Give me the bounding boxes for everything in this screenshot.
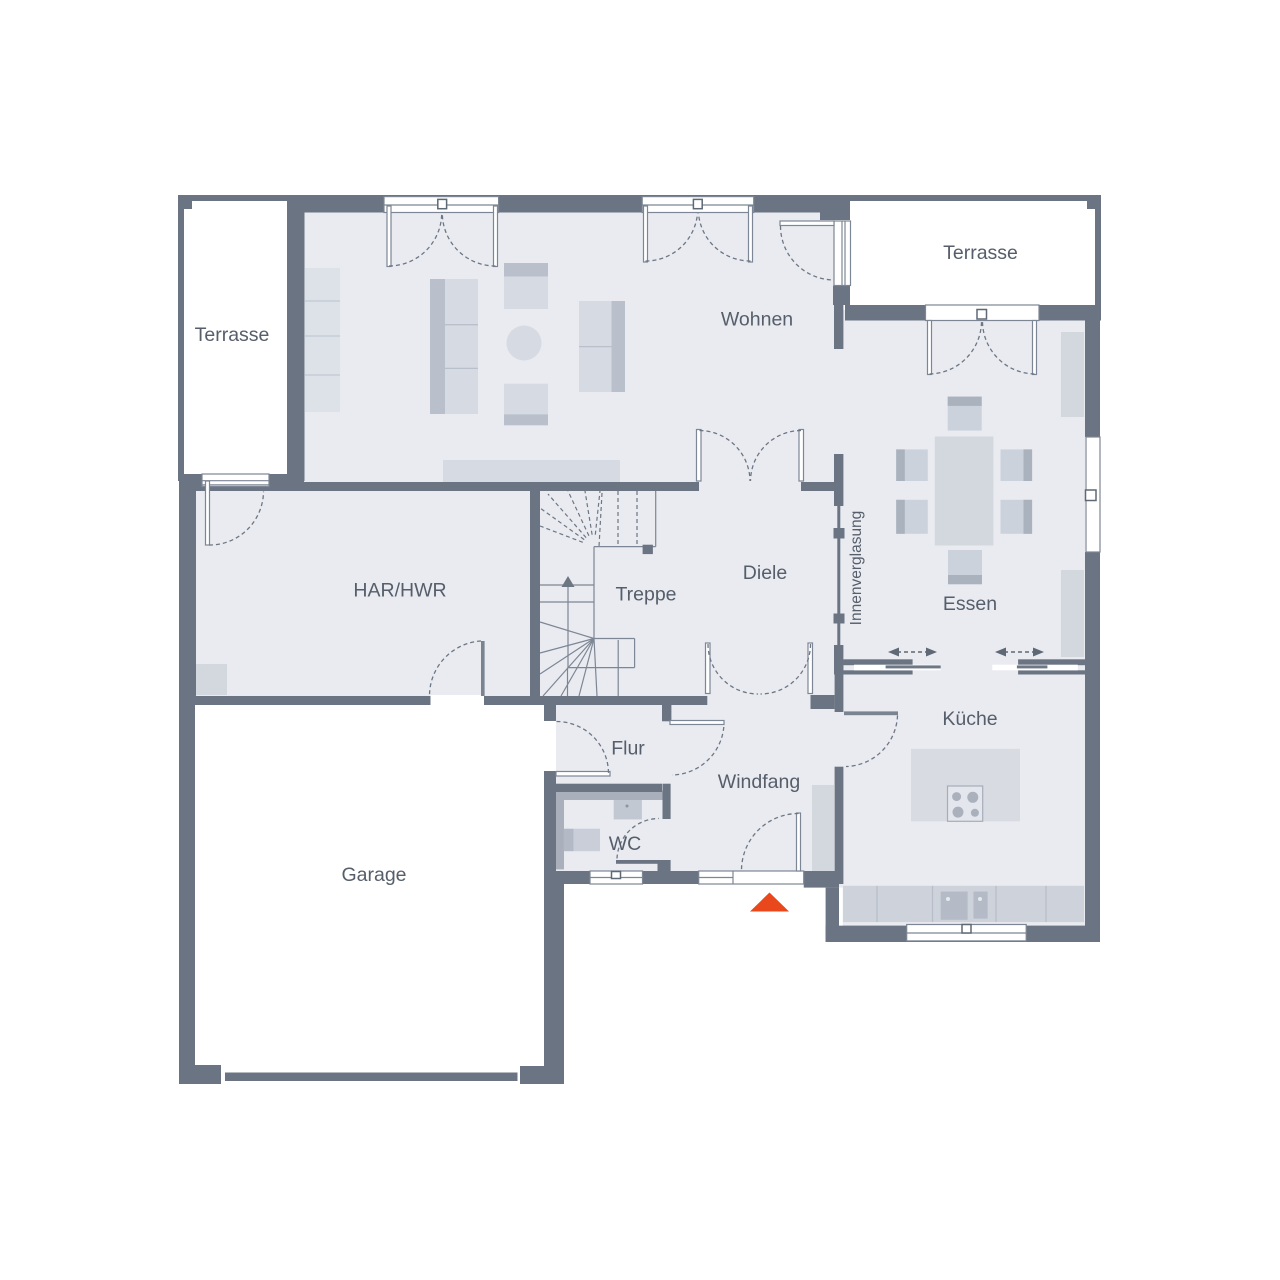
svg-text:Wohnen: Wohnen	[721, 309, 793, 331]
svg-text:Terrasse: Terrasse	[195, 324, 270, 346]
svg-text:Terrasse: Terrasse	[943, 242, 1018, 264]
svg-text:Treppe: Treppe	[615, 584, 676, 606]
svg-text:Diele: Diele	[743, 562, 787, 584]
svg-text:Flur: Flur	[611, 738, 645, 760]
svg-text:Windfang: Windfang	[718, 771, 800, 793]
svg-text:Küche: Küche	[942, 708, 997, 730]
svg-text:Innenverglasung: Innenverglasung	[848, 511, 865, 626]
svg-text:HAR/HWR: HAR/HWR	[353, 580, 446, 602]
svg-text:WC: WC	[609, 833, 642, 855]
svg-text:Essen: Essen	[943, 593, 997, 615]
svg-text:Garage: Garage	[341, 864, 406, 886]
